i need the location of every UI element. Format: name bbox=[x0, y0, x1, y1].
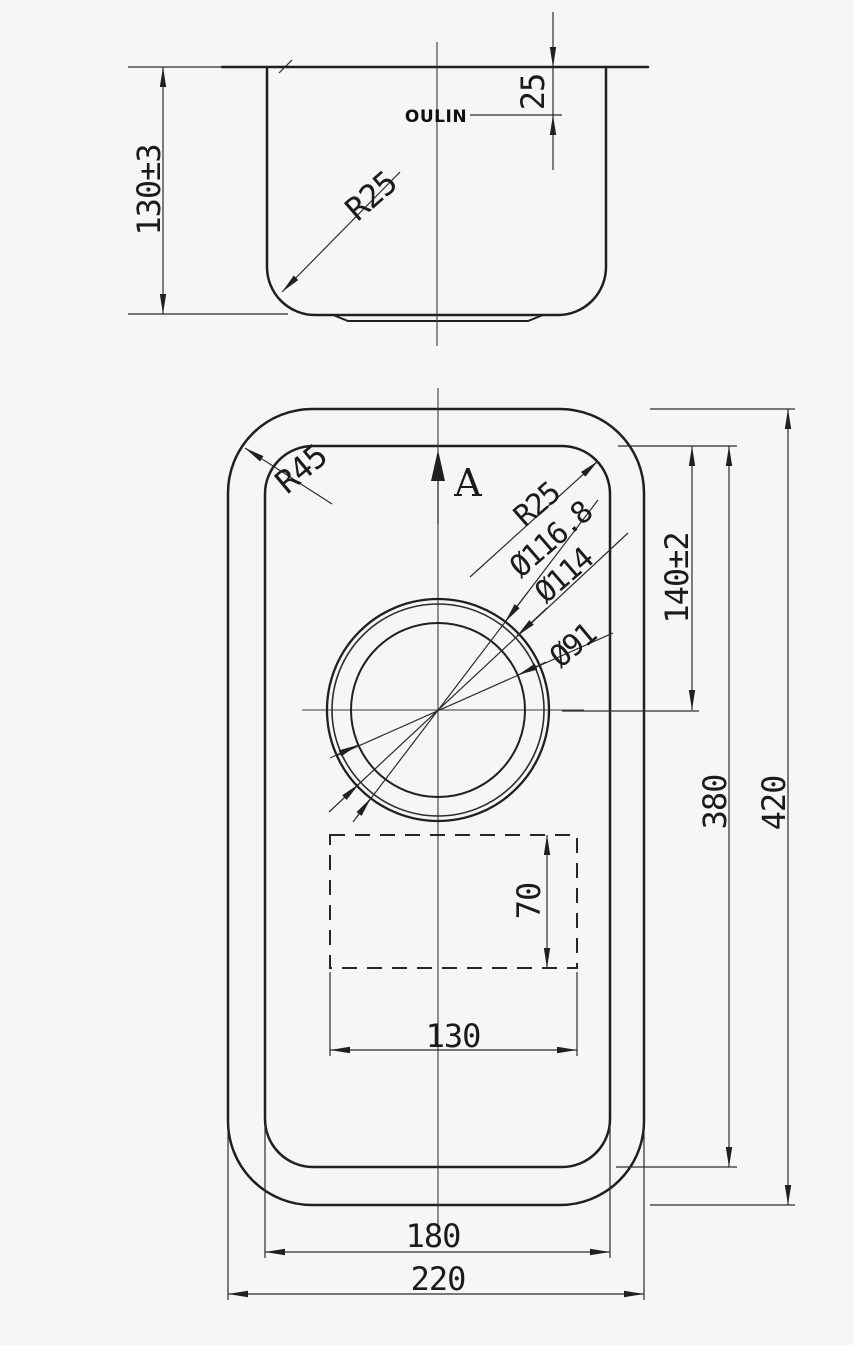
dia-114-arrow-ll bbox=[329, 784, 359, 812]
label-side-r25: R25 bbox=[338, 164, 404, 229]
dia-114-arrow-ur bbox=[517, 608, 547, 636]
dim-depth-label: 130±3 bbox=[130, 144, 168, 235]
dim-180-label: 180 bbox=[406, 1217, 461, 1255]
dim-380-label: 380 bbox=[696, 775, 734, 830]
brand-logo: OULIN bbox=[405, 107, 467, 127]
dia-116-arrow-ll bbox=[353, 798, 371, 822]
section-arrow bbox=[431, 450, 445, 481]
label-dia-inner: Ø91 bbox=[543, 617, 603, 675]
plan-view: A R45 R25 Ø116.8 Ø114 Ø91 140±2 380 bbox=[228, 388, 795, 1300]
dim-130-label: 130 bbox=[426, 1017, 481, 1055]
dim-140-label: 140±2 bbox=[658, 532, 696, 623]
drawing-page: 130±3 25 R25 OULIN A R45 R25 bbox=[0, 0, 854, 1345]
dim-420-label: 420 bbox=[755, 776, 793, 831]
dim-70-label: 70 bbox=[510, 883, 548, 920]
dia-116-arrow-ur bbox=[505, 592, 528, 622]
dim-220-label: 220 bbox=[411, 1260, 466, 1298]
side-view: 130±3 25 R25 OULIN bbox=[128, 12, 648, 346]
sink-technical-drawing: 130±3 25 R25 OULIN A R45 R25 bbox=[0, 0, 854, 1345]
section-label: A bbox=[453, 461, 482, 505]
dim-25-label: 25 bbox=[514, 74, 552, 111]
